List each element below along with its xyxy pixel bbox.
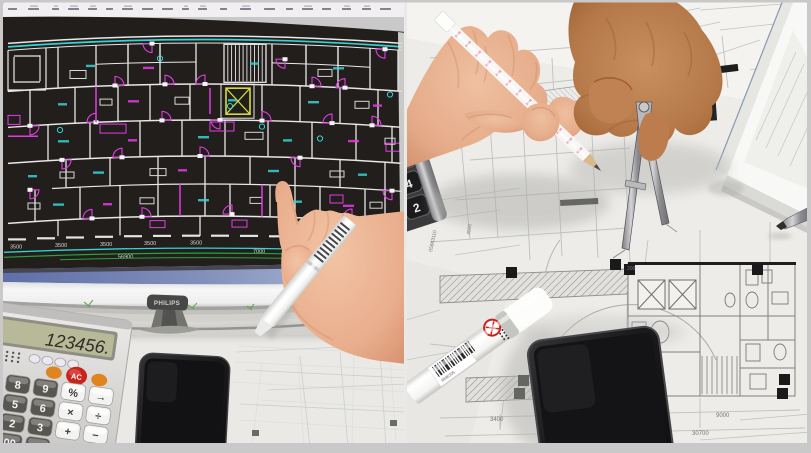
svg-text:3500: 3500: [55, 243, 67, 249]
svg-text:3400: 3400: [490, 417, 504, 423]
svg-text:30700: 30700: [692, 431, 709, 437]
svg-text:3500: 3500: [190, 241, 202, 247]
svg-text:%: %: [67, 387, 79, 400]
svg-text:PHILIPS: PHILIPS: [154, 300, 180, 307]
svg-text:3500: 3500: [100, 242, 112, 248]
svg-text:3500: 3500: [144, 241, 156, 247]
svg-text:9000: 9000: [716, 413, 730, 419]
svg-text:3500: 3500: [10, 245, 22, 251]
svg-text:200: 200: [627, 266, 636, 272]
svg-text:56900: 56900: [118, 254, 133, 260]
svg-text:→: →: [95, 391, 108, 404]
svg-text:AC: AC: [70, 372, 83, 383]
